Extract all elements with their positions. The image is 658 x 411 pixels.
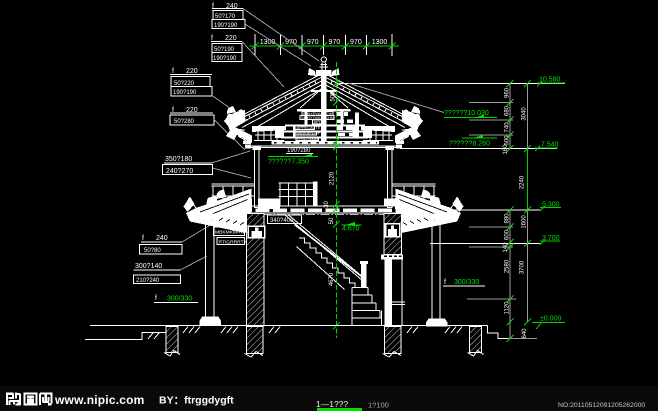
svg-text:50?80: 50?80 bbox=[144, 248, 161, 254]
svg-text:f: f bbox=[142, 235, 144, 242]
svg-text:1120: 1120 bbox=[505, 301, 511, 315]
svg-text:740: 740 bbox=[505, 122, 511, 133]
svg-text:??????7.350: ??????7.350 bbox=[268, 159, 309, 166]
svg-text:190?190: 190?190 bbox=[173, 90, 197, 96]
svg-text:190?190: 190?190 bbox=[213, 56, 237, 62]
svg-text:970: 970 bbox=[329, 39, 341, 46]
svg-text:350?180: 350?180 bbox=[165, 156, 192, 163]
svg-text:1300: 1300 bbox=[372, 39, 388, 46]
svg-text:240?270: 240?270 bbox=[166, 168, 193, 175]
svg-text:BY：ftrggdygft: BY：ftrggdygft bbox=[159, 395, 234, 407]
svg-text:50: 50 bbox=[329, 217, 335, 224]
svg-text:500: 500 bbox=[505, 135, 511, 146]
svg-text:300/330: 300/330 bbox=[454, 279, 479, 286]
svg-text:NO:20110512091205262000: NO:20110512091205262000 bbox=[558, 402, 645, 409]
svg-text:3700: 3700 bbox=[520, 260, 526, 274]
svg-text:=APPECAUTE: =APPECAUTE bbox=[295, 125, 321, 130]
svg-text:1?100: 1?100 bbox=[368, 401, 389, 410]
svg-text:4.670: 4.670 bbox=[342, 226, 360, 233]
svg-text:2240: 2240 bbox=[520, 175, 526, 189]
svg-text:MBKMKMAW: MBKMKMAW bbox=[215, 230, 245, 236]
svg-text:190?190: 190?190 bbox=[214, 23, 238, 29]
svg-text:??????8.260: ??????8.260 bbox=[449, 141, 490, 148]
svg-text:880: 880 bbox=[505, 213, 511, 224]
svg-text:140: 140 bbox=[503, 242, 509, 253]
svg-text:3040: 3040 bbox=[522, 107, 528, 121]
svg-text:1600: 1600 bbox=[522, 215, 528, 229]
svg-text:300/330: 300/330 bbox=[167, 296, 192, 303]
svg-text:f: f bbox=[211, 35, 213, 42]
svg-text:f: f bbox=[444, 279, 446, 286]
svg-text:970: 970 bbox=[307, 39, 319, 46]
svg-text:500: 500 bbox=[331, 91, 337, 102]
svg-text:50?280: 50?280 bbox=[174, 119, 195, 125]
svg-text:600: 600 bbox=[505, 229, 511, 240]
svg-text:1—1???: 1—1??? bbox=[316, 399, 348, 409]
svg-text:640: 640 bbox=[522, 328, 528, 339]
svg-text:160: 160 bbox=[503, 144, 509, 155]
svg-text:RTIGRRRTK: RTIGRRRTK bbox=[219, 240, 248, 246]
svg-text:f: f bbox=[172, 68, 174, 75]
svg-text:10.580: 10.580 bbox=[539, 77, 561, 84]
svg-text:1300: 1300 bbox=[260, 39, 276, 46]
svg-text:220: 220 bbox=[186, 68, 198, 75]
svg-text:www.nipic.com: www.nipic.com bbox=[54, 393, 145, 407]
svg-text:220: 220 bbox=[225, 35, 237, 42]
svg-text:=UDG RAA#: =UDG RAA# bbox=[297, 136, 320, 141]
svg-text:340?400: 340?400 bbox=[270, 218, 294, 224]
svg-text:2120: 2120 bbox=[330, 171, 336, 185]
svg-text:680: 680 bbox=[505, 105, 511, 116]
svg-text:960: 960 bbox=[505, 87, 511, 98]
svg-text:AP1H: AP1H bbox=[314, 119, 324, 124]
svg-text:±0.000: ±0.000 bbox=[540, 316, 561, 323]
svg-text:240: 240 bbox=[156, 235, 168, 242]
svg-text:30: 30 bbox=[324, 201, 330, 208]
svg-text:4670: 4670 bbox=[329, 272, 335, 286]
svg-text:970: 970 bbox=[350, 39, 362, 46]
svg-text:f: f bbox=[155, 295, 157, 302]
svg-text:MARKAPER#: MARKAPER# bbox=[296, 131, 321, 136]
svg-text:300?140: 300?140 bbox=[135, 263, 162, 270]
svg-text:210?240: 210?240 bbox=[136, 278, 160, 284]
svg-text:2580: 2580 bbox=[505, 259, 511, 273]
